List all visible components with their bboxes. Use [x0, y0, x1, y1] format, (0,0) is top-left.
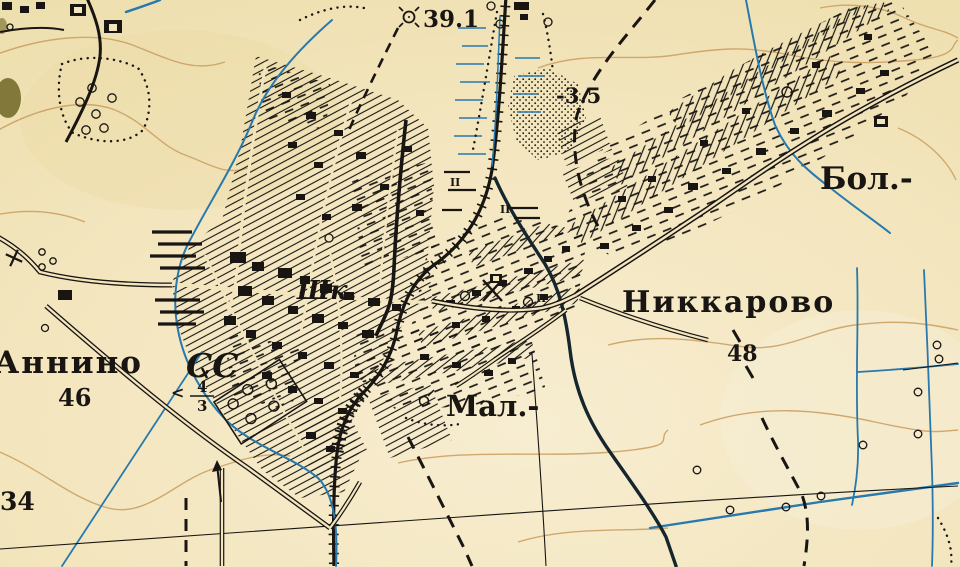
map-viewport[interactable]: 39.1 -3.5 Бол.- Никкарово 48 Аннино СС 4… [0, 0, 960, 567]
topographic-map: 39.1 -3.5 Бол.- Никкарово 48 Аннино СС 4… [0, 0, 960, 567]
meadow-mark-2: II [500, 203, 510, 216]
label-nikkarovo: Никкарово [622, 285, 835, 320]
label-fraction-arrow: < [171, 383, 184, 402]
label-height-48: 48 [727, 341, 758, 367]
label-depth-mark: -3.5 [556, 83, 601, 108]
label-bolshoye: Бол.- [820, 161, 913, 197]
label-height-46: 46 [58, 383, 91, 412]
label-selsoviet: СС [186, 346, 239, 385]
label-spot-height: 39.1 [423, 6, 479, 33]
label-fraction-denominator: 3 [197, 397, 207, 415]
meadow-mark-1: II [450, 176, 460, 189]
meadow-mark-3: II [536, 292, 546, 305]
label-fraction-numerator: 4 [197, 378, 207, 396]
label-school: Шк. [296, 276, 357, 306]
label-maloye: Мал.- [446, 389, 539, 423]
label-height-34: 34 [0, 487, 35, 516]
label-annino: Аннино [0, 345, 143, 381]
